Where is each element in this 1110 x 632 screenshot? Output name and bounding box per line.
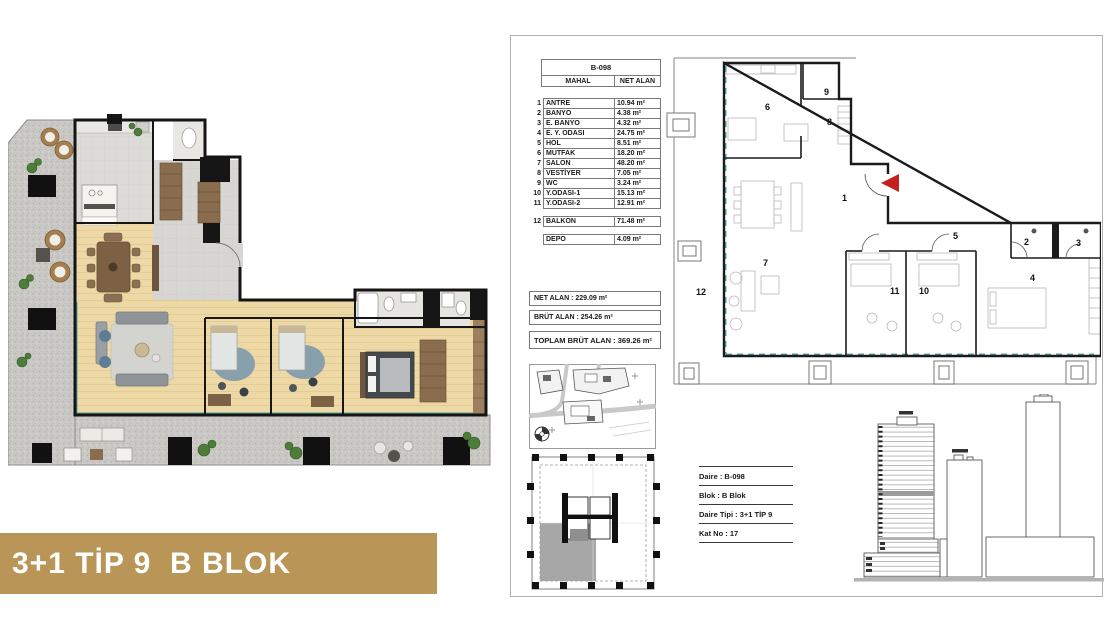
room-no-2: 2	[1024, 237, 1029, 247]
spec-panel: B-098 MAHAL NET ALAN 1ANTRE10.94 m²2BANY…	[510, 35, 1103, 597]
info-daire: Daire : B-098	[699, 467, 793, 486]
key-plan-core	[562, 493, 618, 543]
room-no-10: 10	[919, 286, 929, 296]
table-row-depo: DEPO 4.09 m²	[527, 234, 661, 245]
info-kat: Kat No : 17	[699, 524, 793, 543]
table-header: MAHAL NET ALAN	[541, 75, 661, 87]
balcony-outline	[674, 58, 1096, 384]
room-table-rows: 1ANTRE10.94 m²2BANYO4.38 m²3E. BANYO4.32…	[527, 98, 661, 209]
unit-info-box: Daire : B-098 Blok : B Blok Daire Tipi :…	[699, 466, 793, 543]
room-no-8: 8	[827, 117, 832, 127]
highlighted-floor-17	[878, 491, 934, 496]
tech-glass	[726, 66, 1095, 355]
entry-arrow	[881, 174, 899, 192]
net-alan: NET ALAN : 229.09 m²	[529, 291, 661, 306]
rendered-floor-plan	[8, 112, 494, 478]
key-plan-thumbnail	[526, 453, 661, 596]
page: { "banner": { "label": "3+1 TİP 9 B BLOK…	[0, 0, 1110, 632]
table-row-balkon: 12 BALKON 71.48 m²	[527, 216, 661, 227]
technical-floor-plan: 1 2 3 4 5 6 7 8 9 10 11 12	[666, 46, 1101, 396]
unit-code: B-098	[541, 59, 661, 76]
plan-title: 3+1 TİP 9 B BLOK	[12, 547, 291, 581]
toplam-brut-alan: TOPLAM BRÜT ALAN : 369.26 m²	[529, 331, 661, 349]
tower-a-label-mark	[952, 449, 968, 453]
tower-b	[878, 424, 934, 539]
info-blok: Blok : B Blok	[699, 486, 793, 505]
tech-unit-outline	[724, 63, 1101, 356]
column-symbols	[667, 113, 1088, 384]
room-no-3: 3	[1076, 238, 1081, 248]
tower-c	[1026, 402, 1060, 538]
tech-interior-walls	[724, 63, 1101, 356]
building-elevations	[854, 394, 1104, 586]
tower-c-base	[986, 537, 1094, 577]
wc-fixture	[182, 128, 196, 148]
brut-alan: BRÜT ALAN : 254.26 m²	[529, 310, 661, 325]
tower-b-label-mark	[899, 411, 913, 415]
col-netalan: NET ALAN	[614, 75, 661, 87]
room-no-11: 11	[890, 286, 900, 296]
info-tip: Daire Tipi : 3+1 TİP 9	[699, 505, 793, 524]
tech-bath-fixtures	[1032, 229, 1089, 234]
room-no-7: 7	[763, 258, 768, 268]
room-area-table: B-098 MAHAL NET ALAN 1ANTRE10.94 m²2BANY…	[527, 59, 661, 245]
room-no-1: 1	[842, 193, 847, 203]
room-no-6: 6	[765, 102, 770, 112]
plan-title-banner: 3+1 TİP 9 B BLOK	[0, 533, 437, 594]
col-mahal: MAHAL	[541, 75, 615, 87]
tech-furniture	[726, 65, 1101, 334]
area-summary: NET ALAN : 229.09 m² BRÜT ALAN : 254.26 …	[527, 291, 661, 349]
site-plan-thumbnail	[529, 364, 656, 449]
tower-a	[947, 460, 982, 577]
wing-hall-floor	[205, 300, 355, 318]
room-no-4: 4	[1030, 273, 1035, 283]
ground-line	[854, 578, 1104, 582]
room-no-5: 5	[953, 231, 958, 241]
room-no-9: 9	[824, 87, 829, 97]
table-row: 11Y.ODASI-212.91 m²	[527, 198, 661, 209]
room-no-12: 12	[696, 287, 706, 297]
